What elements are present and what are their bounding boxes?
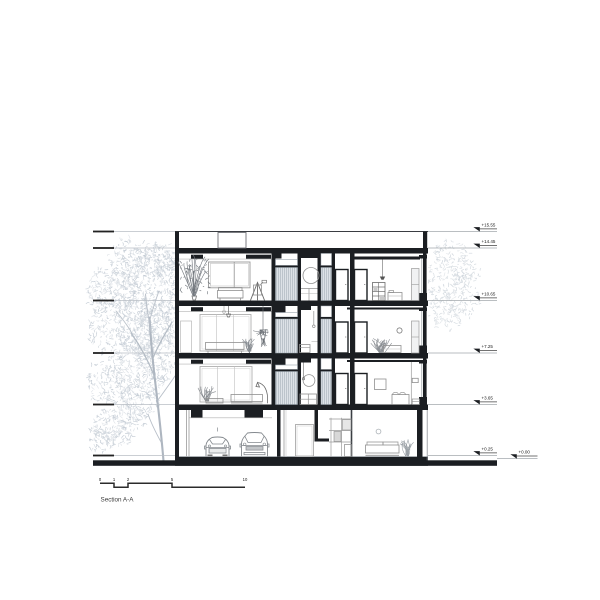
svg-text:0: 0 [99, 477, 102, 482]
svg-text:+0.25: +0.25 [482, 447, 494, 452]
svg-text:+15.55: +15.55 [482, 223, 496, 228]
svg-text:+0.00: +0.00 [519, 450, 531, 455]
svg-text:10: 10 [243, 477, 248, 482]
svg-text:1: 1 [113, 477, 116, 482]
svg-text:2: 2 [127, 477, 130, 482]
svg-text:+14.45: +14.45 [482, 239, 496, 244]
svg-text:+7.25: +7.25 [482, 344, 494, 349]
svg-text:5: 5 [171, 477, 174, 482]
svg-text:+3.65: +3.65 [482, 396, 494, 401]
svg-text:Section A-A: Section A-A [101, 497, 135, 504]
svg-text:+10.65: +10.65 [482, 292, 496, 297]
